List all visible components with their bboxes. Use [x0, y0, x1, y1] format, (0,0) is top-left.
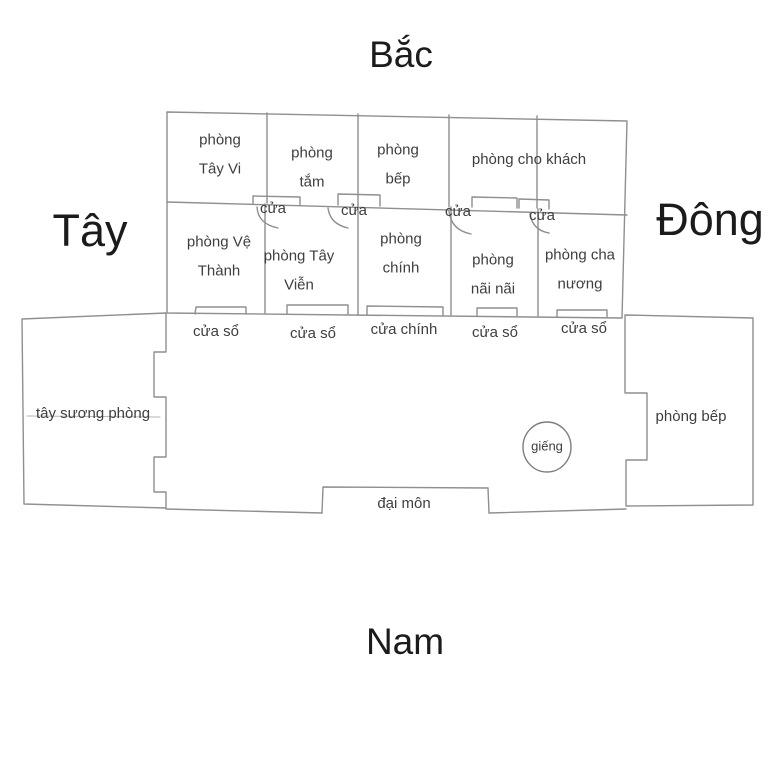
room-ve-thanh-label: phòng Vệ Thành	[178, 229, 260, 286]
room-chinh-label: phòng chính	[373, 226, 429, 283]
room-nai-nai-label: phòng nãi nãi	[463, 247, 523, 304]
room-cha-nuong-label: phòng cha nương	[535, 242, 625, 299]
room-cho-khach-label: phòng cho khách	[472, 146, 586, 175]
window-label-3: cửa sổ	[472, 319, 518, 348]
room-tay-vi-label: phòng Tây Vi	[188, 127, 252, 184]
main-door-label: cửa chính	[371, 316, 438, 345]
east-wing-label: phòng bếp	[656, 403, 727, 432]
compass-north-label: Bắc	[369, 34, 433, 76]
room-bep-label: phòng bếp	[368, 137, 428, 194]
compass-south-label: Nam	[366, 621, 444, 663]
door-label-4: cửa	[529, 202, 555, 231]
room-tay-vien-label: phòng Tây Viễn	[263, 243, 335, 300]
main-gate-label: đại môn	[377, 490, 430, 519]
door-label-1: cửa	[260, 195, 286, 224]
west-wing-label: tây sương phòng	[36, 400, 150, 429]
compass-west-label: Tây	[52, 205, 127, 257]
window-label-4: cửa sổ	[561, 315, 607, 344]
door-label-2: cửa	[341, 197, 367, 226]
room-tam-label: phòng tắm	[282, 140, 342, 197]
window-label-2: cửa sổ	[290, 320, 336, 349]
well-label: giếng	[531, 435, 563, 460]
window-label-1: cửa sổ	[193, 318, 239, 347]
floorplan-canvas: Bắc Nam Tây Đông phòng Tây Vi phòng tắm …	[0, 0, 768, 768]
door-label-3: cửa	[445, 198, 471, 227]
compass-east-label: Đông	[656, 194, 764, 246]
